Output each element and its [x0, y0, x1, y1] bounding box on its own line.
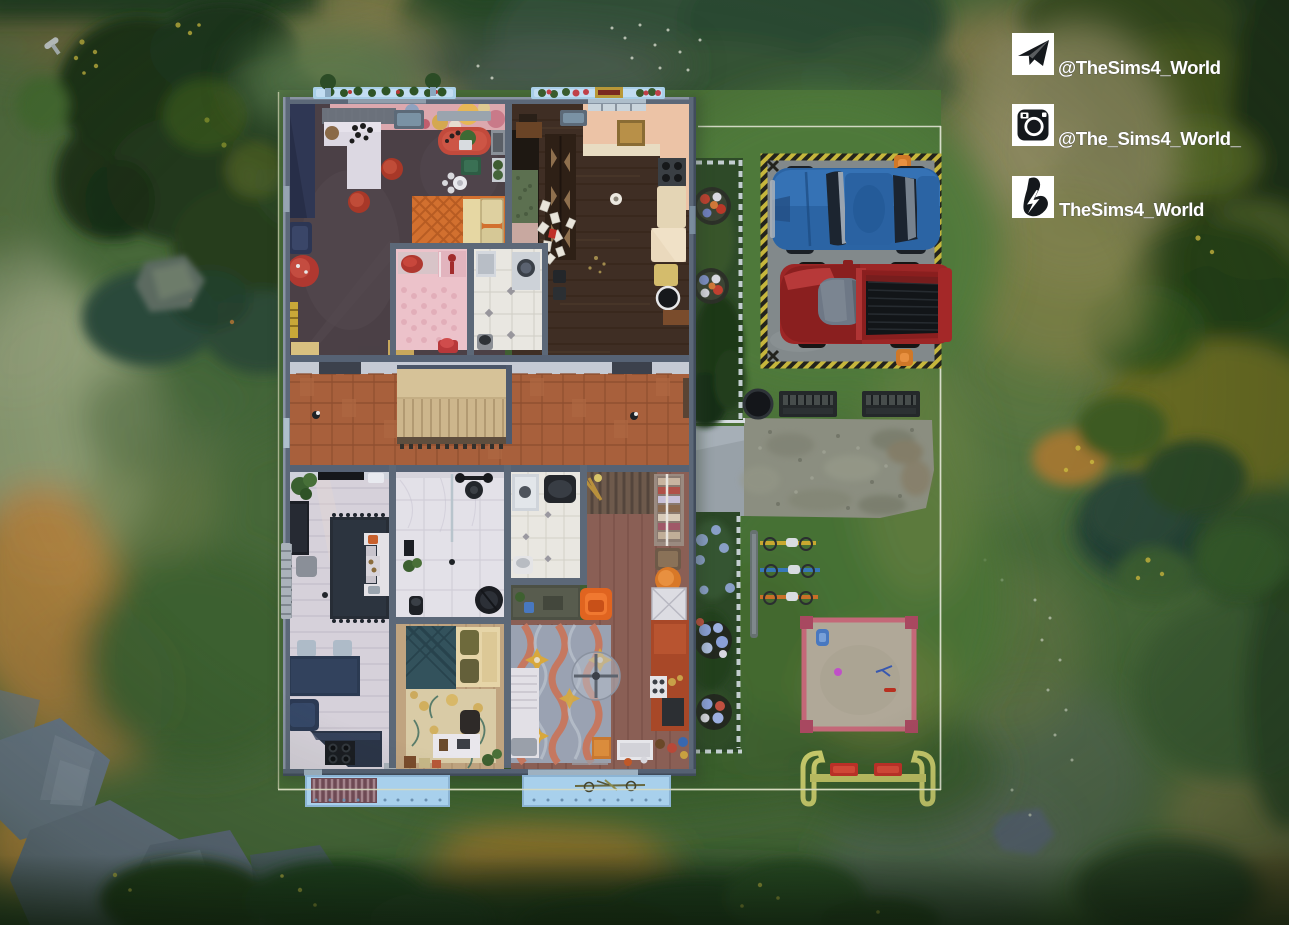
svg-text:@TheSims4_World: @TheSims4_World [1058, 57, 1221, 78]
svg-text:@The_Sims4_World_: @The_Sims4_World_ [1058, 128, 1242, 149]
svg-text:TheSims4_World: TheSims4_World [1059, 199, 1204, 220]
